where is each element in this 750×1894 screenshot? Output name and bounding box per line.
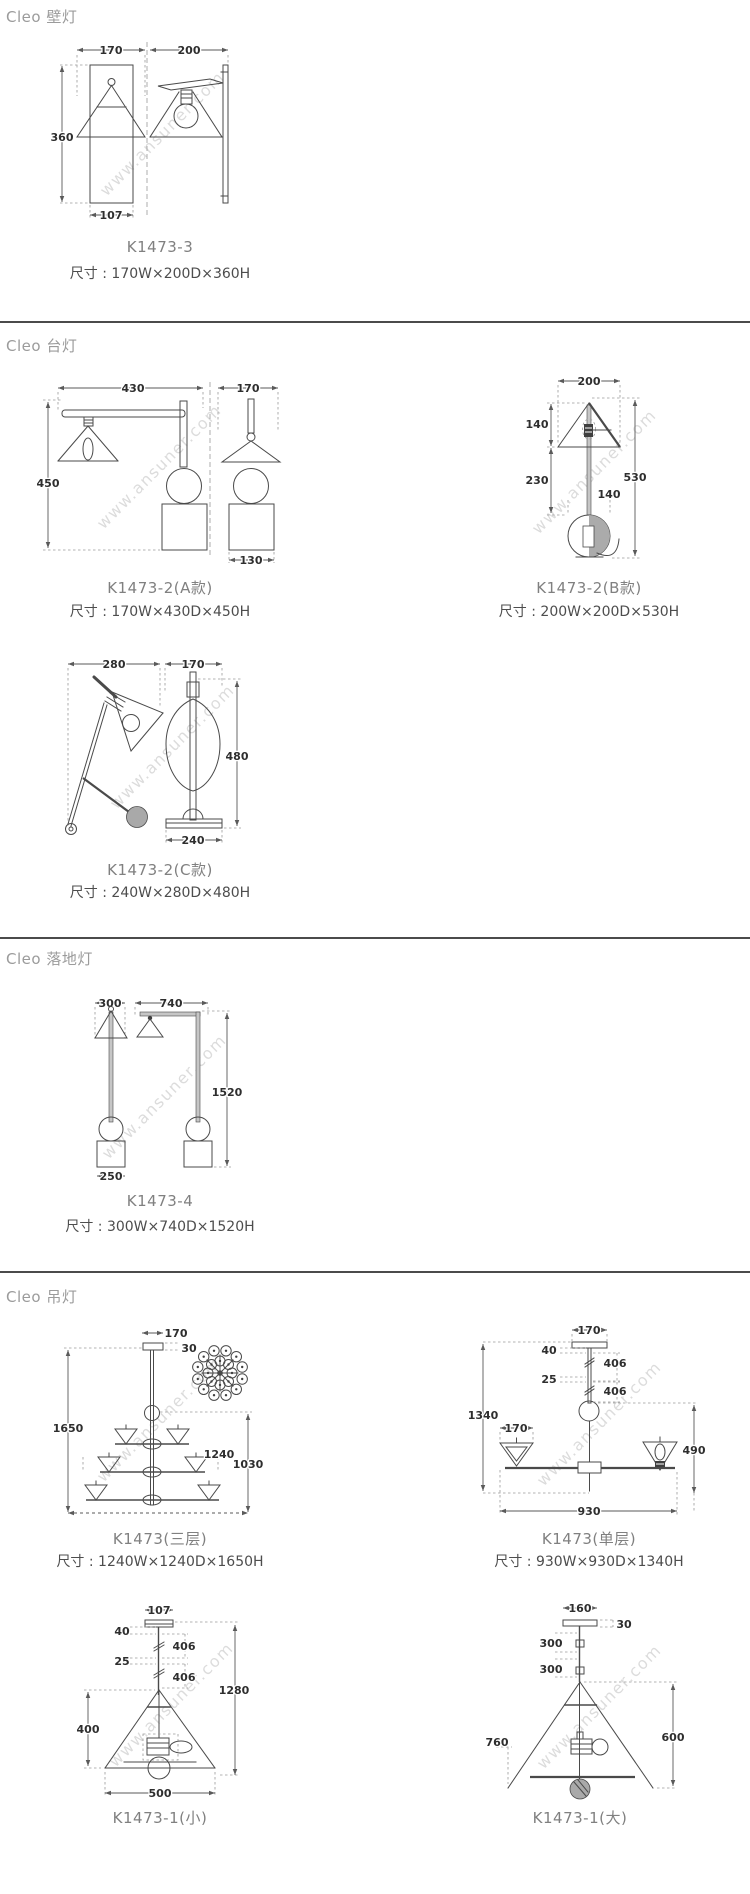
dim-wall-shade-width: 170 (100, 44, 123, 57)
dim-b-ball: 140 (598, 488, 621, 501)
dim-b-shade-height: 140 (526, 418, 549, 431)
drawing-table-lamp-a: 430 170 450 (37, 382, 280, 567)
dim-b-shade-width: 200 (578, 375, 601, 388)
dim-c-height: 480 (226, 750, 249, 763)
drawing-table-lamp-b: 200 140 230 (526, 375, 647, 558)
drawing-table-lamp-c: 280 170 (66, 658, 249, 847)
dim-tri-width: 1240 (204, 1448, 235, 1461)
dim-small-shade-height: 400 (77, 1723, 100, 1736)
spec-sheet-page: Cleo 壁灯 Cleo 台灯 Cleo 落地灯 Cleo 吊灯 www.ans… (0, 0, 750, 1894)
dim-c-depth: 280 (103, 658, 126, 671)
dim-single-body-height: 490 (683, 1444, 706, 1457)
table-c-side-view (166, 672, 222, 828)
floor-left-view (95, 1007, 127, 1168)
table-a-front-view (58, 401, 207, 550)
dim-floor-arm: 740 (160, 997, 183, 1010)
dim-floor-shade-width: 300 (99, 997, 122, 1010)
dim-a-base-width: 130 (240, 554, 263, 567)
drawing-pendant-three-tier: 170 30 1650 (53, 1327, 264, 1513)
dim-b-stem: 230 (526, 474, 549, 487)
dim-large-shade-height: 600 (662, 1731, 685, 1744)
dim-c-shade-width: 170 (182, 658, 205, 671)
table-b-lamp (558, 403, 620, 557)
dim-floor-height: 1520 (212, 1086, 243, 1099)
dim-large-rod1: 300 (540, 1637, 563, 1650)
dim-wall-height: 360 (51, 131, 74, 144)
wall-front-view: 170 360 107 (51, 44, 145, 222)
floor-right-view (137, 1012, 212, 1167)
dim-tri-height: 1650 (53, 1422, 84, 1435)
dim-single-canopy-width: 170 (578, 1324, 601, 1337)
pendant-large-body (508, 1620, 653, 1799)
dim-small-gap1: 40 (114, 1625, 130, 1638)
table-a-side-view: 130 (222, 399, 280, 567)
dim-single-rod1: 406 (604, 1357, 627, 1370)
dim-single-gap1: 40 (541, 1344, 557, 1357)
dim-large-shade-width: 760 (486, 1736, 509, 1749)
dim-single-shade-width: 170 (505, 1422, 528, 1435)
dim-single-height: 1340 (468, 1409, 499, 1422)
dim-small-gap2: 25 (114, 1655, 129, 1668)
dim-large-rod2: 300 (540, 1663, 563, 1676)
dim-large-canopy-height: 30 (616, 1618, 632, 1631)
dim-tri-canopy-height: 30 (181, 1342, 197, 1355)
drawing-pendant-large: 160 30 300 (486, 1602, 685, 1799)
technical-drawings: 170 360 107 200 (0, 0, 750, 1894)
dim-small-shade-width: 500 (149, 1787, 172, 1800)
dim-single-width: 930 (578, 1505, 601, 1518)
dim-wall-depth: 200 (178, 44, 201, 57)
table-c-front-view (66, 677, 164, 835)
dim-a-shade-width: 170 (237, 382, 260, 395)
pendant-single-body (500, 1342, 677, 1491)
dim-tri-body-height: 1030 (233, 1458, 264, 1471)
dim-a-height: 450 (37, 477, 60, 490)
dim-c-base-width: 240 (182, 834, 205, 847)
pendant-tri-body (85, 1350, 220, 1505)
dim-tri-canopy-width: 170 (165, 1327, 188, 1340)
dim-single-gap2: 25 (541, 1373, 556, 1386)
drawing-floor-lamp: 300 740 1520 (95, 997, 243, 1183)
dim-floor-base-width: 250 (100, 1170, 123, 1183)
pendant-tri-top-view (193, 1346, 248, 1401)
dim-a-arm: 430 (122, 382, 145, 395)
pendant-small-body (105, 1620, 215, 1779)
drawing-pendant-small: 107 40 40 (77, 1604, 250, 1800)
dim-small-canopy-width: 107 (148, 1604, 171, 1617)
drawing-pendant-single-tier: 170 40 (468, 1324, 706, 1518)
dim-small-rod2: 406 (173, 1671, 196, 1684)
dim-b-height: 530 (624, 471, 647, 484)
dim-small-rod1: 406 (173, 1640, 196, 1653)
dim-single-rod2: 406 (604, 1385, 627, 1398)
dim-large-canopy-width: 160 (569, 1602, 592, 1615)
drawing-wall-lamp: 170 360 107 200 (51, 42, 228, 222)
dim-small-height: 1280 (219, 1684, 250, 1697)
wall-side-view: 200 (150, 44, 228, 203)
dim-wall-plate-width: 107 (100, 209, 123, 222)
